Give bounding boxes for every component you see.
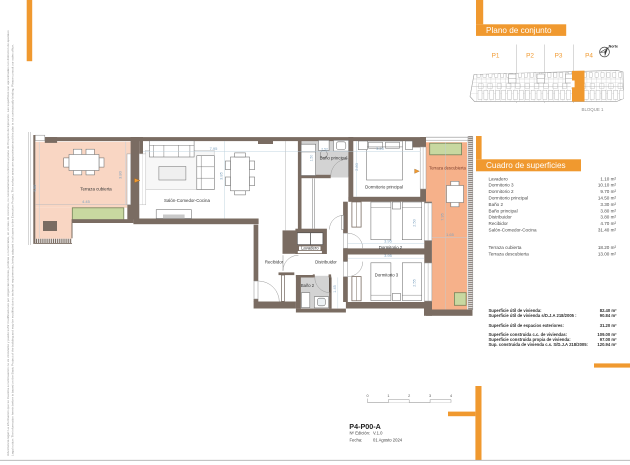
svg-text:P2: P2: [526, 53, 534, 60]
svg-text:Dormitorio principal: Dormitorio principal: [365, 185, 403, 190]
svg-text:Superficie útil de vivienda s/: Superficie útil de vivienda s/D.J.A 218/…: [489, 313, 577, 318]
svg-text:Recibidor: Recibidor: [489, 221, 509, 226]
svg-text:Dormitorio principal: Dormitorio principal: [489, 196, 529, 201]
svg-text:Norte: Norte: [609, 45, 618, 49]
svg-text:Lavadero: Lavadero: [489, 176, 509, 181]
svg-text:2.50: 2.50: [413, 219, 417, 226]
svg-text:3.95: 3.95: [384, 238, 393, 243]
svg-text:Distribuidor: Distribuidor: [315, 259, 337, 264]
svg-text:4.45: 4.45: [82, 199, 91, 204]
svg-text:0: 0: [366, 394, 368, 398]
svg-text:2.80: 2.80: [354, 162, 359, 171]
svg-text:Superficie útil de espacios ex: Superficie útil de espacios exteriores:: [489, 323, 564, 328]
svg-text:1.10 m²: 1.10 m²: [600, 176, 616, 181]
svg-text:Cuadro de superficies: Cuadro de superficies: [486, 161, 566, 170]
svg-text:4.90: 4.90: [32, 184, 37, 193]
svg-text:Lavadero: Lavadero: [301, 246, 319, 251]
svg-text:Fecha:: Fecha:: [350, 438, 363, 443]
svg-text:10.10 m²: 10.10 m²: [598, 183, 617, 188]
svg-text:3.80: 3.80: [118, 170, 123, 179]
svg-text:Baño 2: Baño 2: [489, 202, 504, 207]
svg-text:3.95: 3.95: [384, 253, 393, 258]
svg-text:2.52: 2.52: [321, 148, 328, 152]
svg-text:90.84 m²: 90.84 m²: [600, 313, 617, 318]
svg-text:BLOQUE 1: BLOQUE 1: [582, 107, 605, 112]
svg-text:1.50: 1.50: [310, 155, 314, 162]
svg-text:Salón-Comedor-Cocina: Salón-Comedor-Cocina: [489, 228, 537, 233]
svg-text:Dormitorio 2: Dormitorio 2: [489, 189, 514, 194]
svg-text:Dormitorio 2: Dormitorio 2: [379, 245, 403, 250]
svg-text:4: 4: [450, 394, 452, 398]
svg-text:Legal notice: The information: Legal notice: The information herein bef…: [11, 44, 15, 456]
svg-text:Distribuidor: Distribuidor: [489, 215, 513, 220]
svg-text:01 Agosto 2024: 01 Agosto 2024: [373, 438, 403, 443]
svg-text:120.94 m²: 120.94 m²: [597, 342, 617, 347]
svg-text:18.20 m²: 18.20 m²: [598, 245, 617, 250]
svg-text:13.00 m²: 13.00 m²: [598, 251, 617, 256]
svg-text:3.30 m²: 3.30 m²: [600, 202, 616, 207]
svg-text:Nº Edición:: Nº Edición:: [350, 431, 371, 436]
svg-text:V.1.0: V.1.0: [373, 431, 383, 436]
svg-text:2.55: 2.55: [413, 279, 417, 286]
svg-text:Dormitorio 3: Dormitorio 3: [375, 272, 399, 277]
svg-text:7.95: 7.95: [210, 146, 219, 151]
svg-text:3.20: 3.20: [376, 146, 385, 151]
svg-text:P3: P3: [555, 53, 563, 60]
svg-text:14.50 m²: 14.50 m²: [598, 196, 617, 201]
svg-text:Dormitorio 3: Dormitorio 3: [489, 183, 514, 188]
svg-text:Terraza cubierta: Terraza cubierta: [489, 245, 522, 250]
svg-text:Terraza cubierta: Terraza cubierta: [80, 187, 112, 192]
svg-text:2: 2: [408, 394, 410, 398]
svg-text:3: 3: [429, 394, 431, 398]
svg-text:Baño principal: Baño principal: [320, 156, 348, 161]
svg-text:Recibidor: Recibidor: [265, 259, 284, 264]
svg-text:P1: P1: [492, 53, 500, 60]
svg-text:3.85: 3.85: [219, 171, 224, 180]
svg-text:Baño principal: Baño principal: [489, 208, 518, 213]
svg-text:Sup. construida de vivienda c.: Sup. construida de vivienda c.s. S/D.J.A…: [489, 342, 588, 347]
svg-text:Baño 2: Baño 2: [301, 283, 315, 288]
svg-text:1.45: 1.45: [333, 285, 337, 292]
svg-text:Advertencia legal: La informac: Advertencia legal: La información que se…: [6, 30, 10, 456]
svg-text:3.80 m²: 3.80 m²: [600, 208, 616, 213]
svg-text:1.65: 1.65: [446, 232, 455, 237]
svg-text:31.20 m²: 31.20 m²: [600, 323, 617, 328]
svg-text:31.40 m²: 31.40 m²: [598, 228, 617, 233]
svg-text:7.95: 7.95: [441, 213, 445, 220]
svg-text:Plano de conjunto: Plano de conjunto: [486, 26, 552, 35]
svg-text:P4: P4: [585, 53, 593, 60]
svg-text:Terraza descubierta: Terraza descubierta: [429, 166, 466, 171]
svg-text:9.70 m²: 9.70 m²: [600, 189, 616, 194]
svg-text:Terraza descubierta: Terraza descubierta: [489, 251, 530, 256]
svg-text:1: 1: [387, 394, 389, 398]
svg-text:Salón-Comedor-Cocina: Salón-Comedor-Cocina: [164, 198, 210, 203]
svg-text:3.80 m²: 3.80 m²: [600, 215, 616, 220]
svg-text:4.70 m²: 4.70 m²: [600, 221, 616, 226]
